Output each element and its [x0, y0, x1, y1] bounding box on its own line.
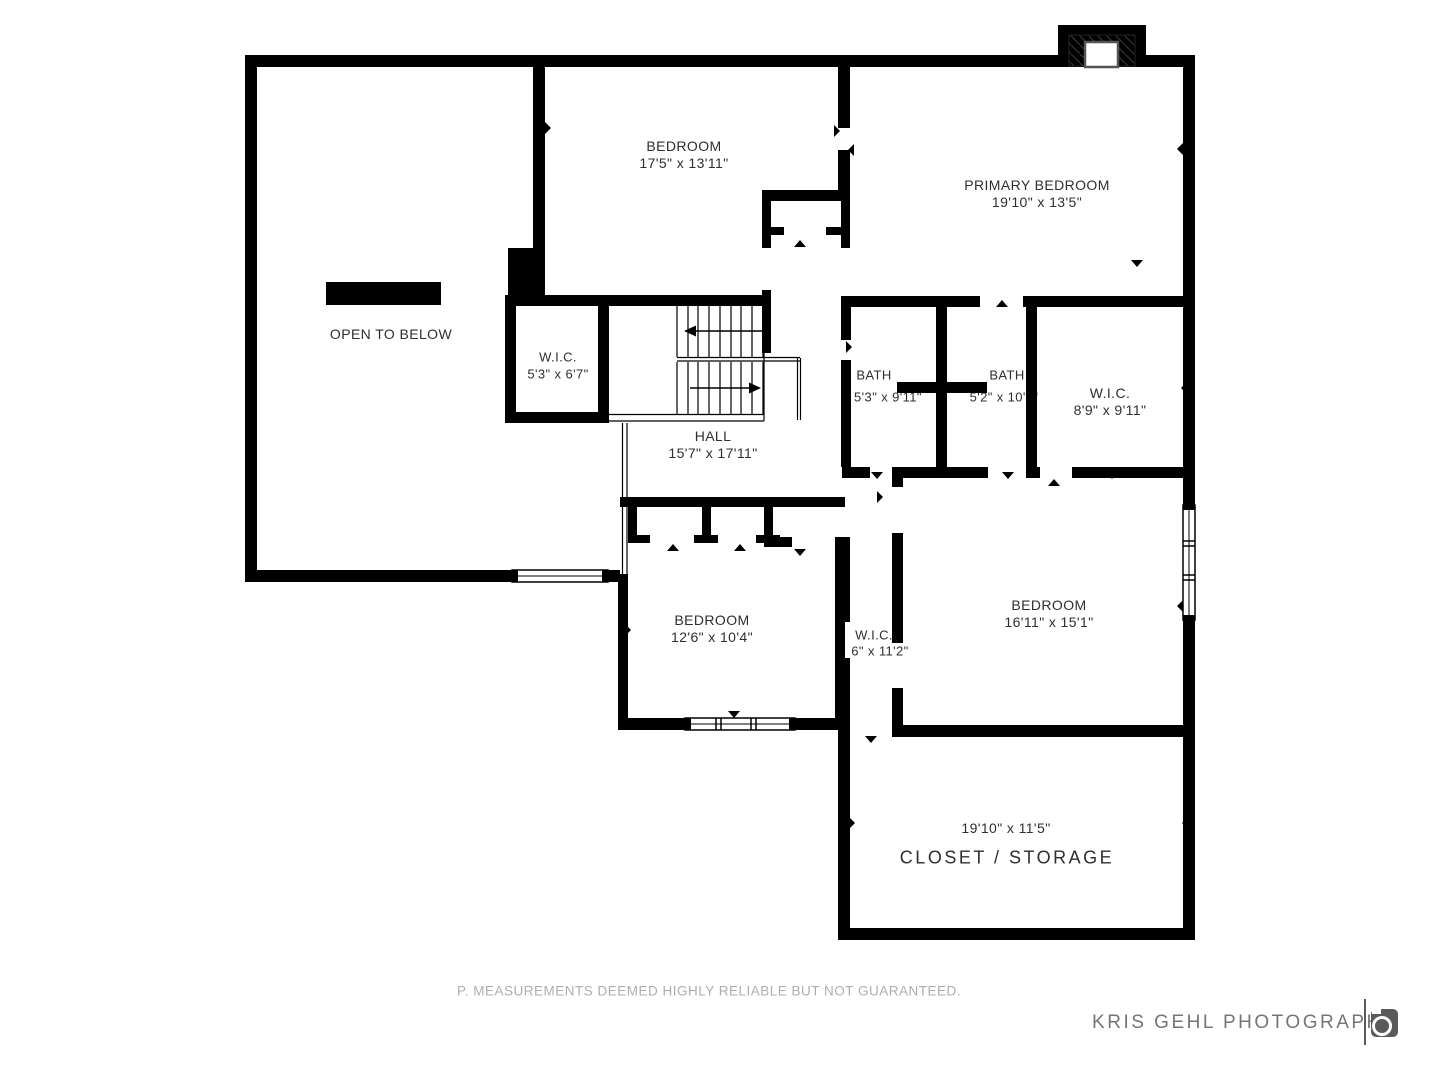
room-dims-bedroom-right: 16'11" x 15'1" [1004, 614, 1093, 630]
room-label-open-to-below: OPEN TO BELOW [330, 326, 452, 342]
room-dims-hall: 15'7" x 17'11" [668, 445, 757, 461]
stair-arrow-up [684, 326, 696, 337]
window-open-area [512, 570, 608, 582]
floor-plan-page: OPEN TO BELOW BEDROOM 17'5" x 13'11" PRI… [0, 0, 1440, 1080]
door-markers [545, 58, 1188, 829]
room-label-bedroom-left: BEDROOM [674, 612, 749, 628]
room-label-wic-mid: W.I.C. [855, 628, 893, 643]
room-label-wic-right: W.I.C. [1090, 385, 1131, 401]
camera-icon [1371, 1002, 1401, 1040]
room-dims-bath-right: 5'2" x 10'0" [970, 390, 1039, 405]
room-label-bedroom-right: BEDROOM [1011, 597, 1086, 613]
logo-divider [1364, 999, 1366, 1045]
room-dims-bedroom-top: 17'5" x 13'11" [639, 155, 728, 171]
stair-direction-arrows [684, 326, 763, 394]
room-label-bath-left: BATH [856, 368, 891, 383]
window-bedroom-right [1183, 505, 1195, 620]
window-bedroom-left [685, 718, 795, 730]
room-dims-wic-small: 5'3" x 6'7" [527, 367, 588, 382]
room-dims-closet-storage: 19'10" x 11'5" [961, 820, 1050, 836]
fireplace [1069, 35, 1135, 67]
room-label-closet-storage: CLOSET / STORAGE [900, 848, 1114, 869]
camera-flash [1372, 1009, 1381, 1014]
room-label-wic-small: W.I.C. [539, 350, 577, 365]
room-dims-primary-bedroom: 19'10" x 13'5" [992, 194, 1082, 210]
photography-logo-text: KRIS GEHL PHOTOGRAPHY [1092, 1012, 1398, 1034]
room-dims-wic-mid: 6" x 11'2" [851, 644, 908, 659]
disclaimer-text: P. MEASUREMENTS DEEMED HIGHLY RELIABLE B… [457, 984, 961, 999]
stair-arrow-down [749, 383, 761, 394]
fireplace-outline [1058, 25, 1146, 67]
room-label-hall: HALL [695, 428, 732, 444]
room-dims-bedroom-left: 12'6" x 10'4" [671, 629, 753, 645]
room-dims-wic-right: 8'9" x 9'11" [1074, 402, 1147, 418]
room-label-primary-bedroom: PRIMARY BEDROOM [964, 177, 1110, 193]
room-label-bedroom-top: BEDROOM [646, 138, 721, 154]
room-dims-bath-left: 5'3" x 9'11" [854, 390, 922, 405]
room-label-bath-right: BATH [989, 368, 1024, 383]
open-below-beam [326, 282, 441, 305]
camera-lens [1372, 1016, 1392, 1036]
